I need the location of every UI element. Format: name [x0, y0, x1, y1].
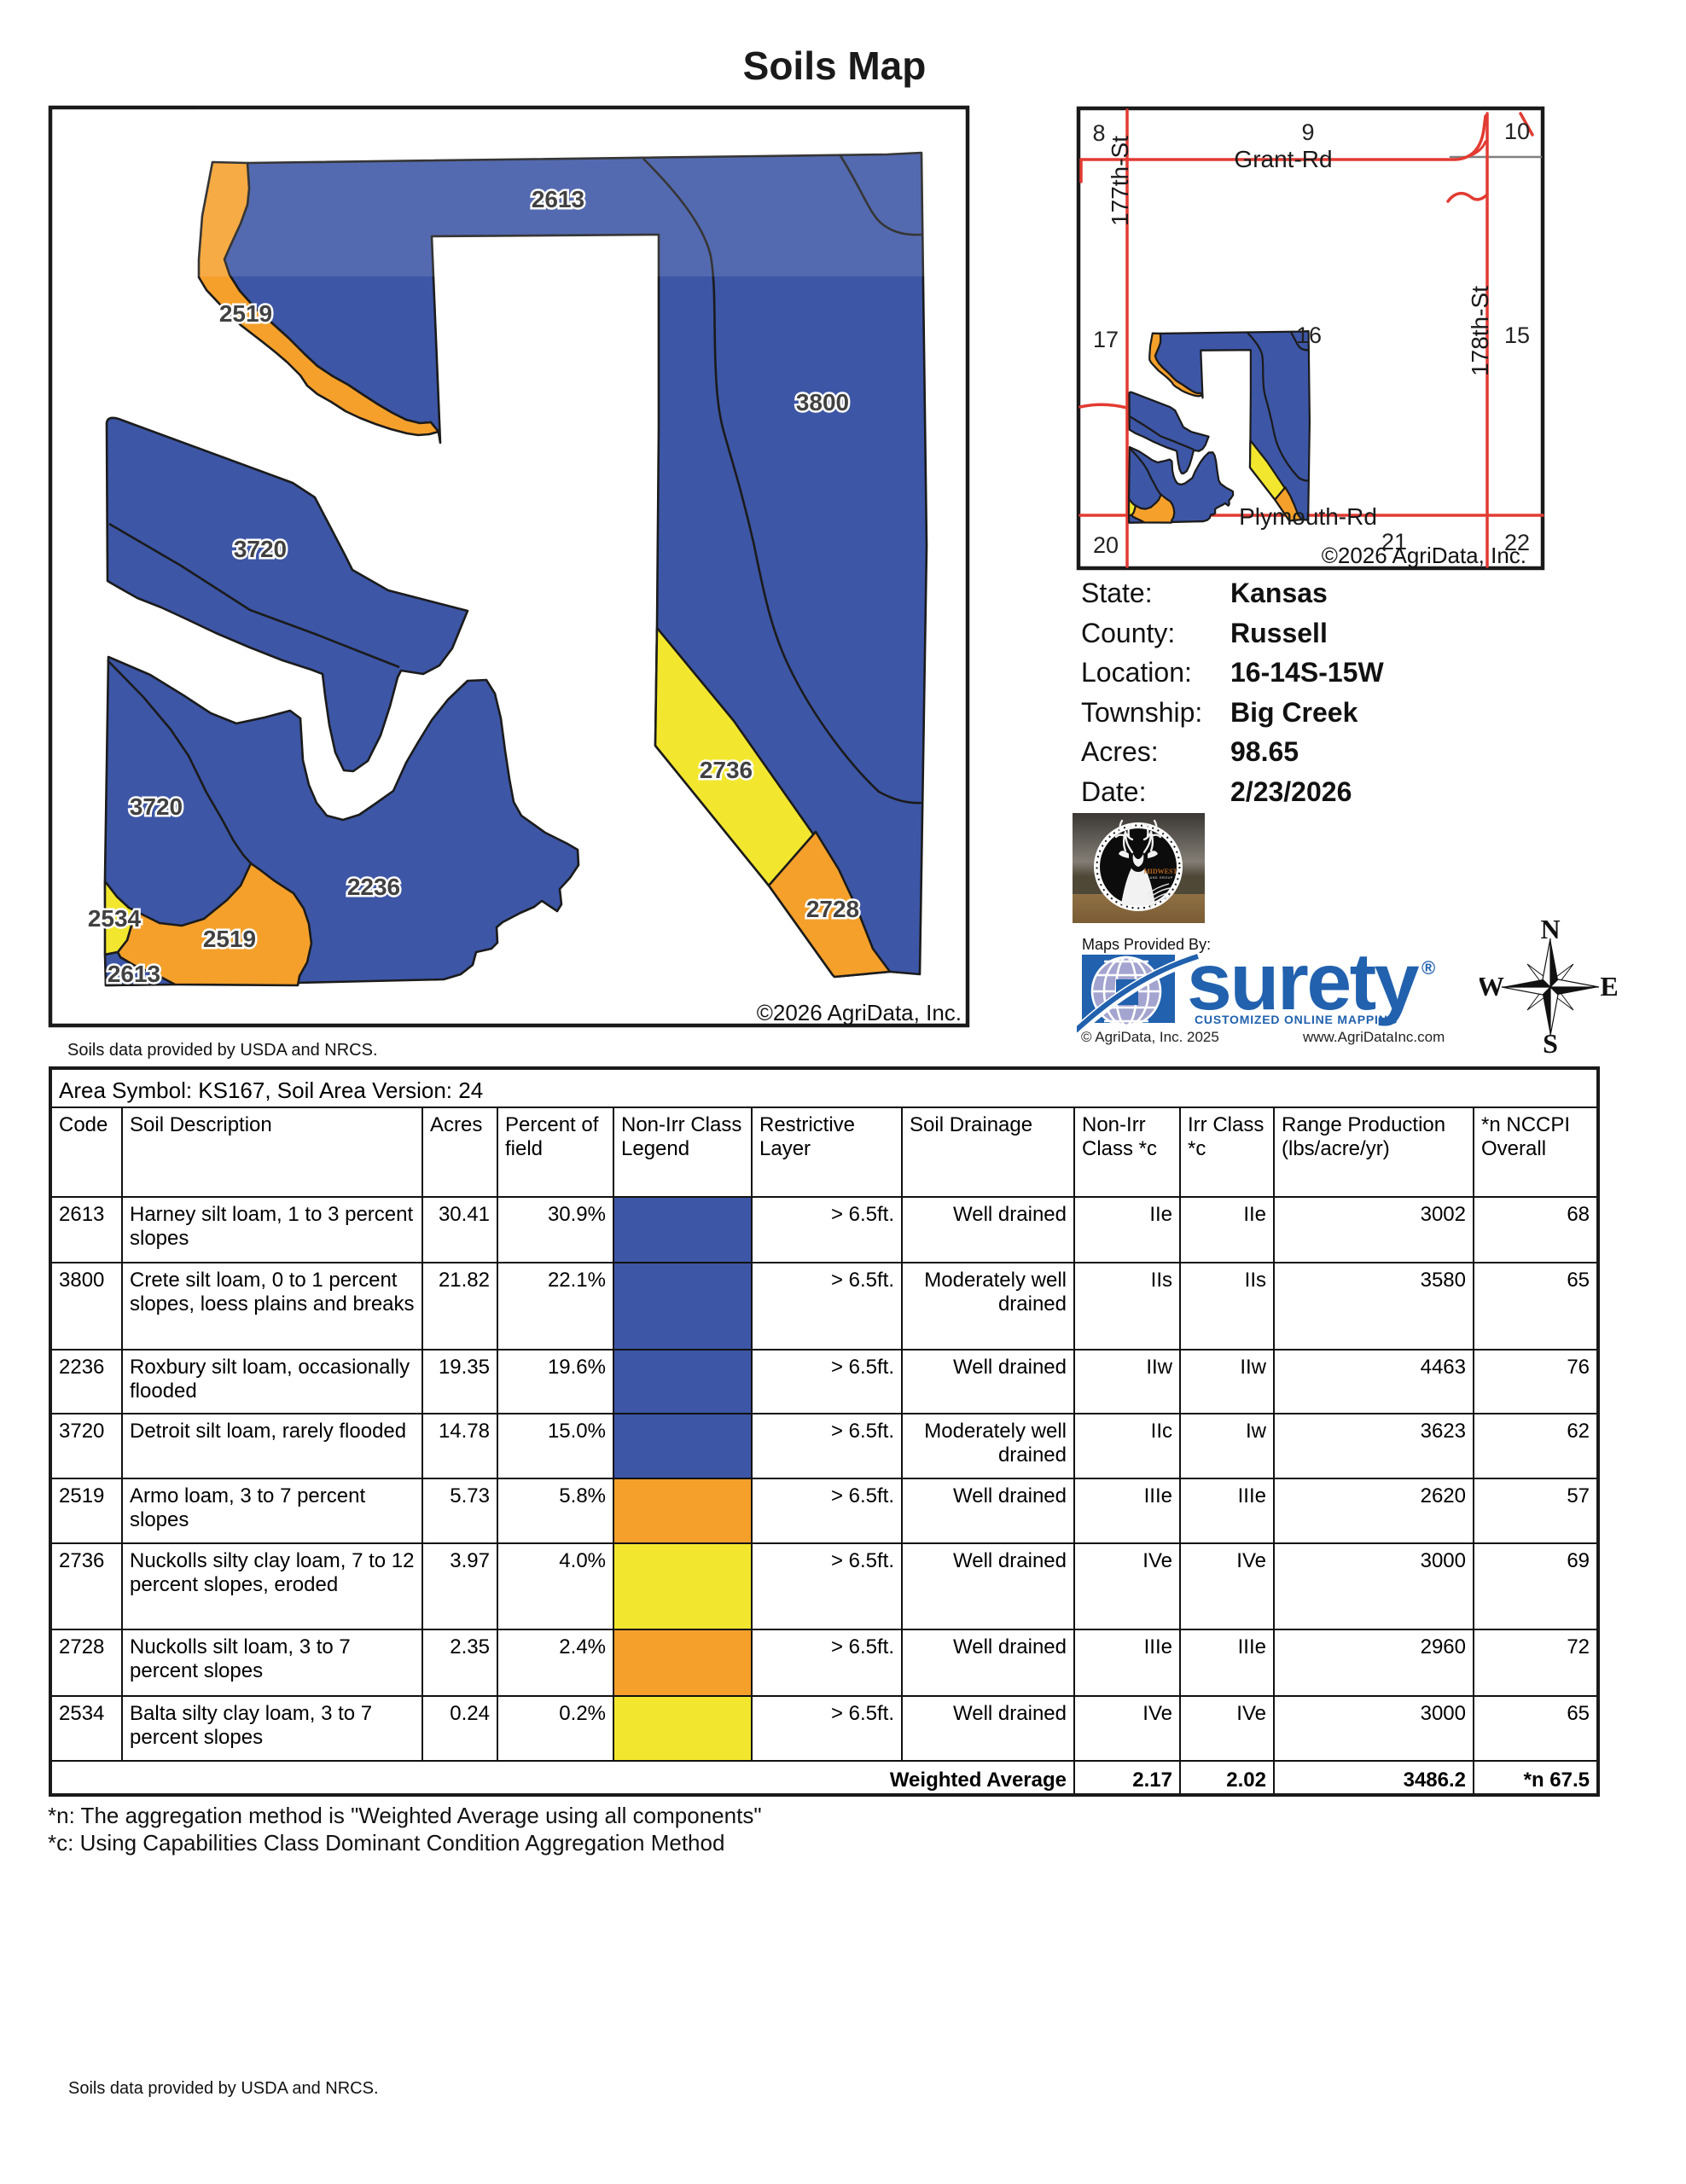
svg-text:N: N [1540, 916, 1560, 944]
svg-text:2534: 2534 [88, 905, 142, 932]
svg-text:3800: 3800 [796, 389, 849, 415]
svg-text:15: 15 [1504, 322, 1530, 348]
svg-text:2613: 2613 [532, 186, 584, 212]
svg-text:W: W [1480, 971, 1504, 1002]
svg-text:2236: 2236 [347, 874, 400, 900]
svg-text:2736: 2736 [700, 757, 753, 783]
svg-text:©2026 AgriData, Inc.: ©2026 AgriData, Inc. [757, 1000, 962, 1025]
svg-text:177th-St: 177th-St [1107, 136, 1133, 226]
svg-text:16: 16 [1296, 322, 1322, 348]
svg-text:MIDWEST: MIDWEST [1143, 868, 1177, 875]
svg-text:2519: 2519 [219, 300, 272, 327]
svg-text:LAND GROUP: LAND GROUP [1148, 876, 1173, 880]
svg-text:2519: 2519 [203, 926, 256, 952]
svg-text:Grant-Rd: Grant-Rd [1234, 146, 1332, 172]
svg-text:10: 10 [1504, 119, 1530, 144]
svg-text:2728: 2728 [806, 896, 859, 922]
svg-text:178th-St: 178th-St [1467, 286, 1493, 376]
svg-text:S: S [1543, 1028, 1558, 1059]
svg-text:3720: 3720 [234, 536, 287, 562]
svg-text:3720: 3720 [130, 793, 183, 820]
svg-text:Plymouth-Rd: Plymouth-Rd [1239, 503, 1377, 530]
svg-text:9: 9 [1301, 119, 1314, 145]
svg-text:2613: 2613 [108, 961, 160, 987]
svg-text:E: E [1600, 971, 1618, 1002]
svg-text:20: 20 [1093, 532, 1119, 558]
svg-text:8: 8 [1092, 120, 1105, 146]
svg-text:©2026 AgriData, Inc.: ©2026 AgriData, Inc. [1322, 543, 1526, 568]
svg-text:17: 17 [1093, 327, 1119, 352]
